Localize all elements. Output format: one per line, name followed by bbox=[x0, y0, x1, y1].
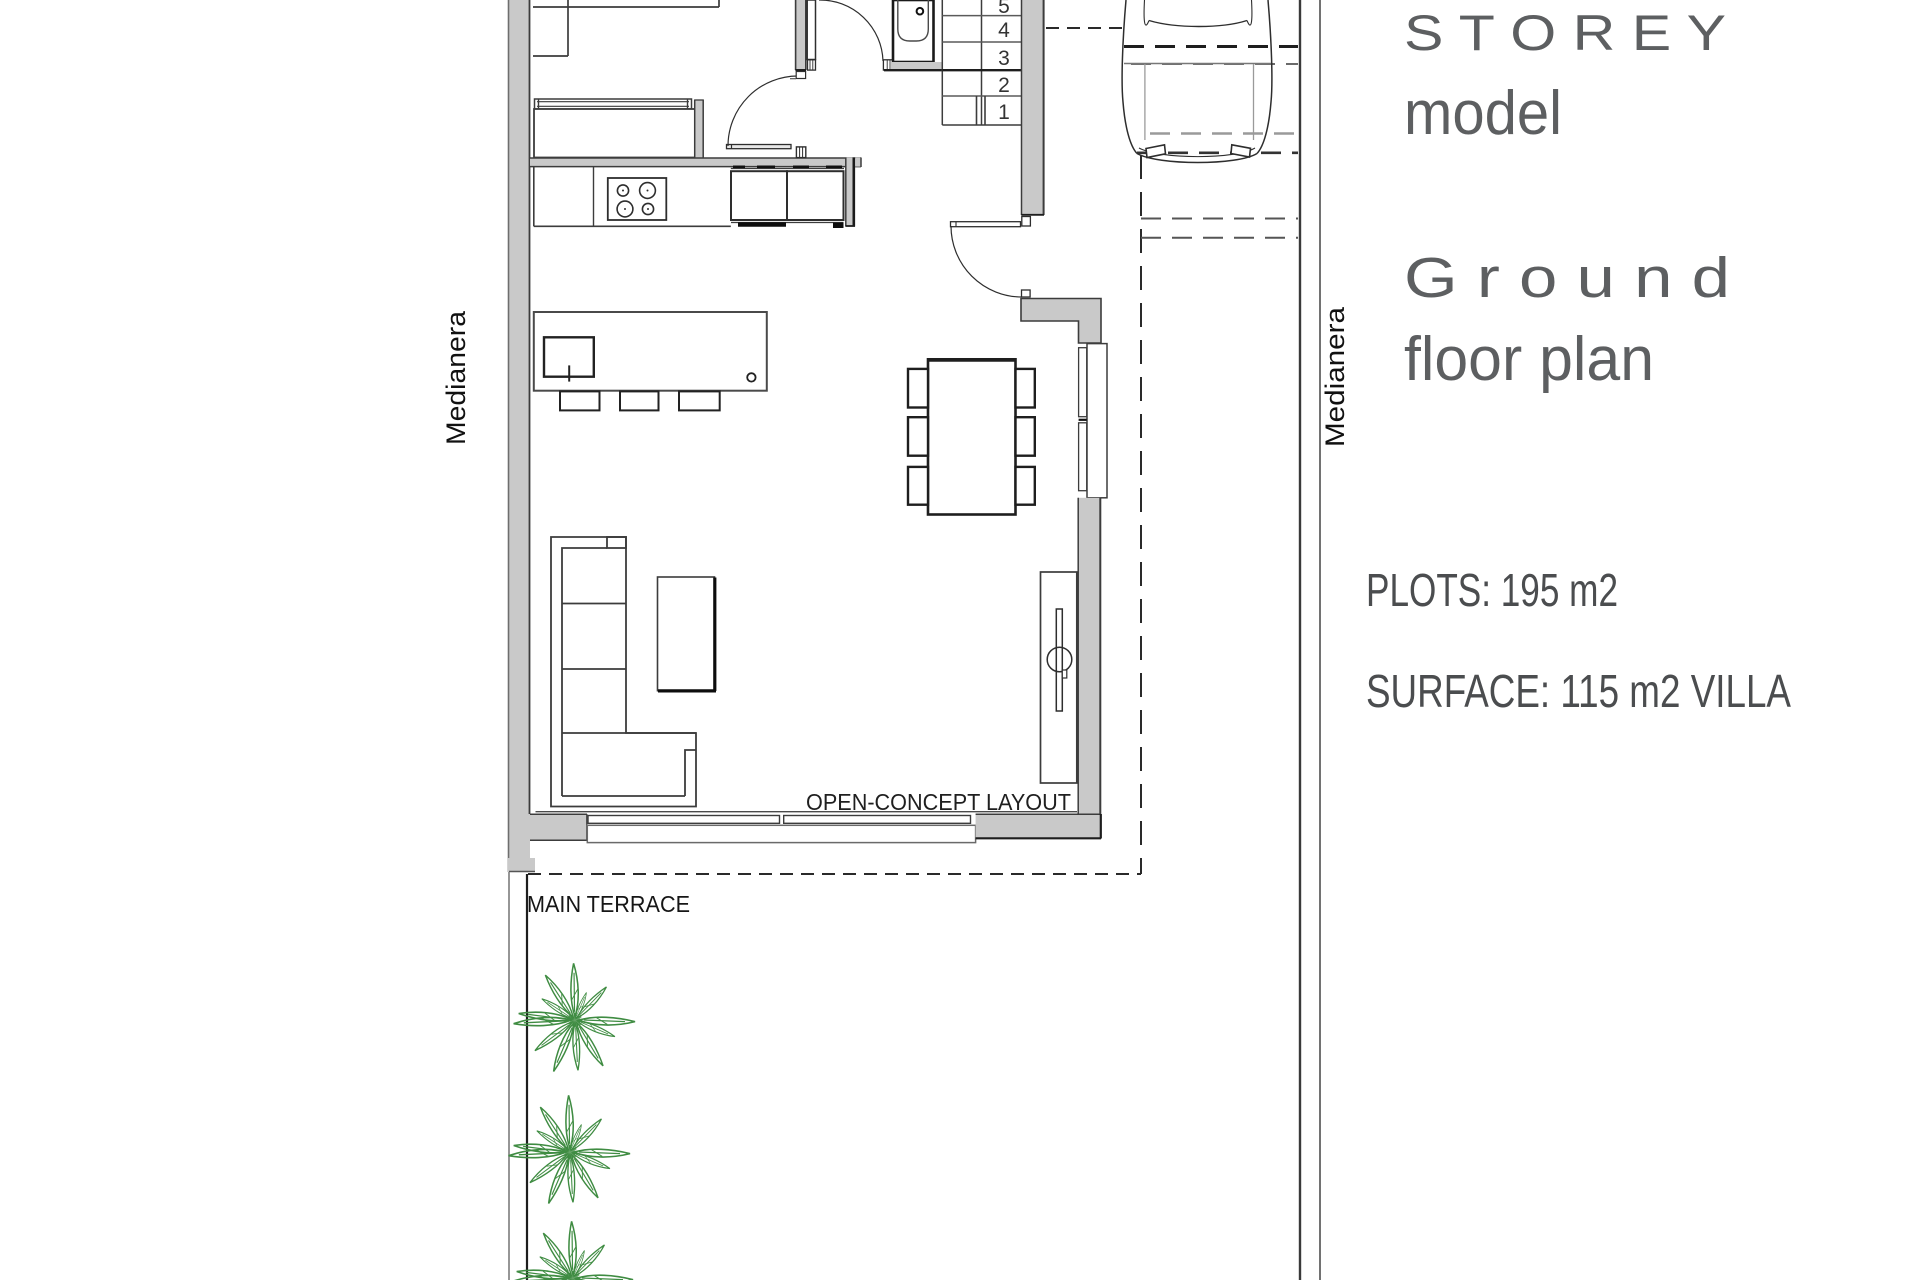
svg-text:OPEN-CONCEPT LAYOUT: OPEN-CONCEPT LAYOUT bbox=[806, 789, 1071, 815]
svg-text:2: 2 bbox=[998, 74, 1010, 97]
svg-text:G r o u n d: G r o u n d bbox=[1404, 246, 1730, 310]
svg-text:3: 3 bbox=[998, 47, 1010, 70]
svg-text:1: 1 bbox=[998, 101, 1010, 124]
svg-text:5: 5 bbox=[998, 0, 1010, 18]
svg-text:MAIN TERRACE: MAIN TERRACE bbox=[527, 891, 690, 917]
svg-text:SURFACE: 115 m2 VILLA: SURFACE: 115 m2 VILLA bbox=[1366, 665, 1791, 717]
svg-text:floor plan: floor plan bbox=[1404, 325, 1654, 394]
svg-text:model: model bbox=[1404, 79, 1562, 148]
svg-text:Medianera: Medianera bbox=[441, 310, 471, 445]
svg-text:4: 4 bbox=[998, 19, 1010, 42]
svg-text:S T O R E Y: S T O R E Y bbox=[1404, 5, 1726, 61]
svg-text:Medianera: Medianera bbox=[1320, 306, 1350, 447]
svg-text:PLOTS: 195 m2: PLOTS: 195 m2 bbox=[1366, 564, 1618, 616]
